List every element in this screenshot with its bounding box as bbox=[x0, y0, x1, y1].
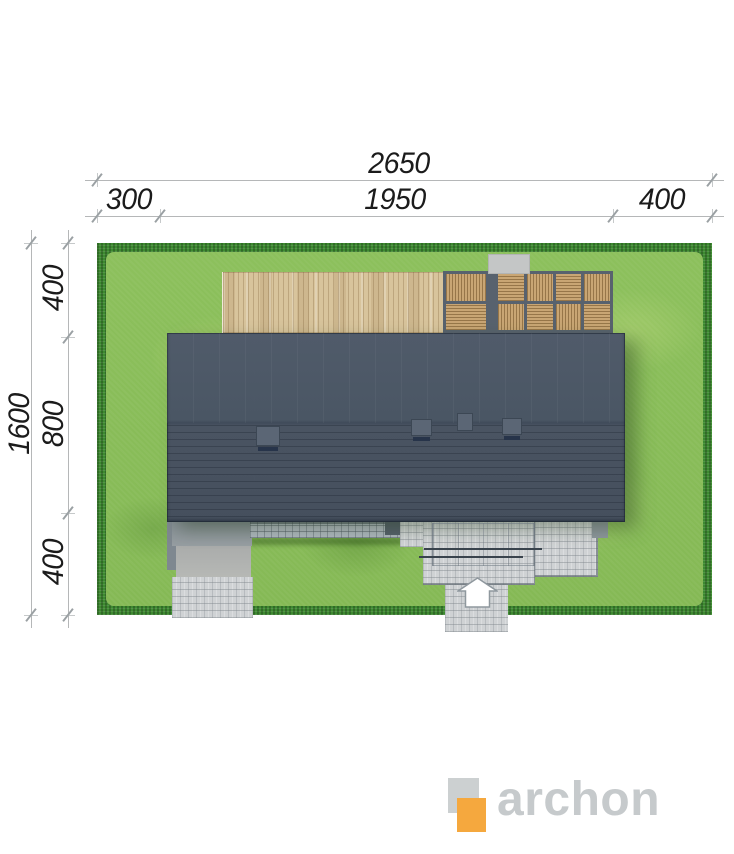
dim-label-height-bottom: 400 bbox=[37, 539, 71, 585]
pergola-panel bbox=[584, 274, 610, 301]
pergola-post bbox=[489, 274, 495, 301]
pergola-panel bbox=[527, 274, 553, 301]
chimney bbox=[502, 418, 522, 435]
entrance-patio bbox=[535, 522, 598, 577]
pergola bbox=[443, 271, 613, 333]
dim-label-width-middle: 1950 bbox=[364, 183, 426, 217]
pergola-panel bbox=[556, 274, 582, 301]
roof-upper-slope bbox=[167, 333, 625, 423]
entrance-step bbox=[419, 556, 523, 558]
roof-support-stub-right bbox=[592, 522, 608, 538]
chimney-shadow bbox=[504, 436, 520, 440]
site-plan-canvas: 2650 300 1950 400 1600 400 800 400 bbox=[0, 0, 734, 854]
driveway-concrete bbox=[176, 546, 251, 577]
pergola-panel bbox=[498, 304, 524, 331]
chimney bbox=[457, 413, 473, 431]
entrance-glass-canopy bbox=[432, 523, 535, 566]
pergola-panel bbox=[446, 304, 486, 331]
entrance-arrow-icon bbox=[457, 577, 498, 608]
archon-logo: archon bbox=[448, 776, 718, 836]
dim-label-height-middle: 800 bbox=[37, 401, 71, 447]
driveway-cobbles bbox=[172, 577, 253, 618]
dim-label-height-top: 400 bbox=[37, 265, 71, 311]
roof-lower-slope bbox=[167, 425, 625, 522]
pergola-panel bbox=[498, 274, 524, 301]
pergola-panel bbox=[556, 304, 582, 331]
logo-orange-square bbox=[457, 798, 486, 832]
house-roof bbox=[167, 333, 625, 522]
walkway-shadow bbox=[250, 538, 402, 545]
entrance-step bbox=[424, 548, 542, 550]
dim-label-width-left: 300 bbox=[106, 183, 152, 217]
pergola-panel bbox=[584, 304, 610, 331]
garage-apron bbox=[172, 522, 252, 546]
dim-label-total-width: 2650 bbox=[368, 147, 430, 181]
wooden-terrace-deck bbox=[222, 272, 447, 333]
chimney bbox=[256, 426, 280, 446]
concrete-pad bbox=[488, 254, 530, 274]
chimney-shadow bbox=[258, 447, 278, 451]
dim-label-width-right: 400 bbox=[639, 183, 685, 217]
pergola-panel bbox=[446, 274, 486, 301]
dim-label-total-height: 1600 bbox=[3, 393, 37, 455]
logo-wordmark: archon bbox=[497, 776, 660, 824]
pergola-panel bbox=[527, 304, 553, 331]
chimney bbox=[411, 419, 432, 436]
pergola-post bbox=[489, 304, 495, 331]
chimney-shadow bbox=[413, 437, 430, 441]
